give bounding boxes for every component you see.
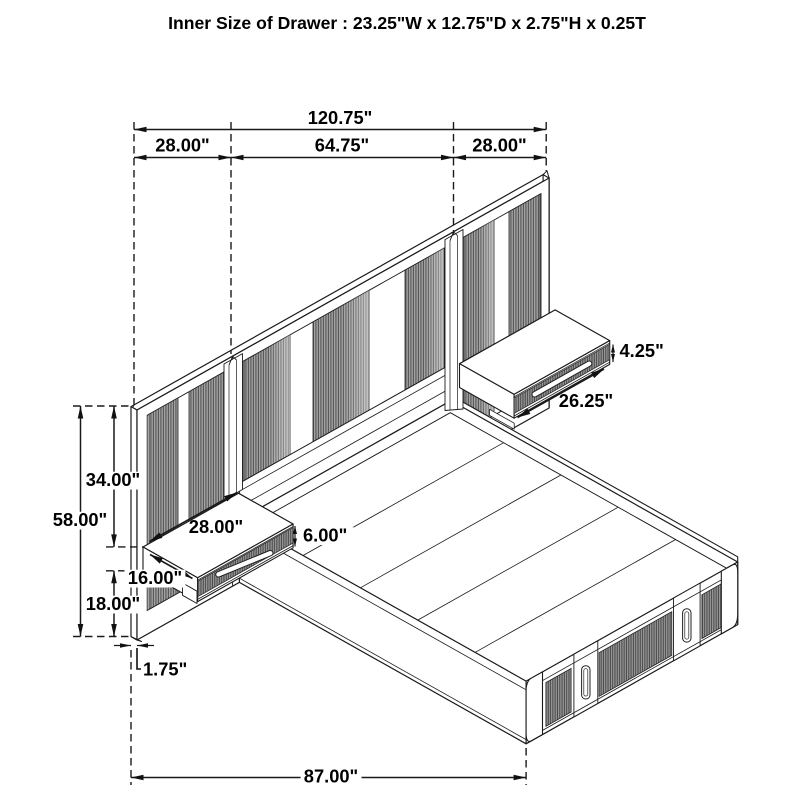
svg-text:64.75": 64.75" [315,135,369,156]
svg-text:26.25": 26.25" [559,390,613,411]
svg-text:28.00": 28.00" [189,516,243,537]
svg-text:6.00": 6.00" [303,525,347,546]
svg-text:4.25": 4.25" [620,340,664,361]
svg-text:Inner Size of Drawer : 23.25"W: Inner Size of Drawer : 23.25"W x 12.75"D… [168,13,646,33]
svg-text:87.00": 87.00" [304,766,358,787]
svg-text:16.00": 16.00" [128,567,182,588]
svg-text:34.00": 34.00" [86,469,140,490]
svg-text:1.75": 1.75" [143,659,187,680]
svg-text:28.00": 28.00" [155,135,209,156]
svg-text:58.00": 58.00" [53,509,107,530]
svg-text:120.75": 120.75" [308,107,373,128]
svg-text:28.00": 28.00" [472,135,526,156]
svg-text:18.00": 18.00" [86,593,140,614]
